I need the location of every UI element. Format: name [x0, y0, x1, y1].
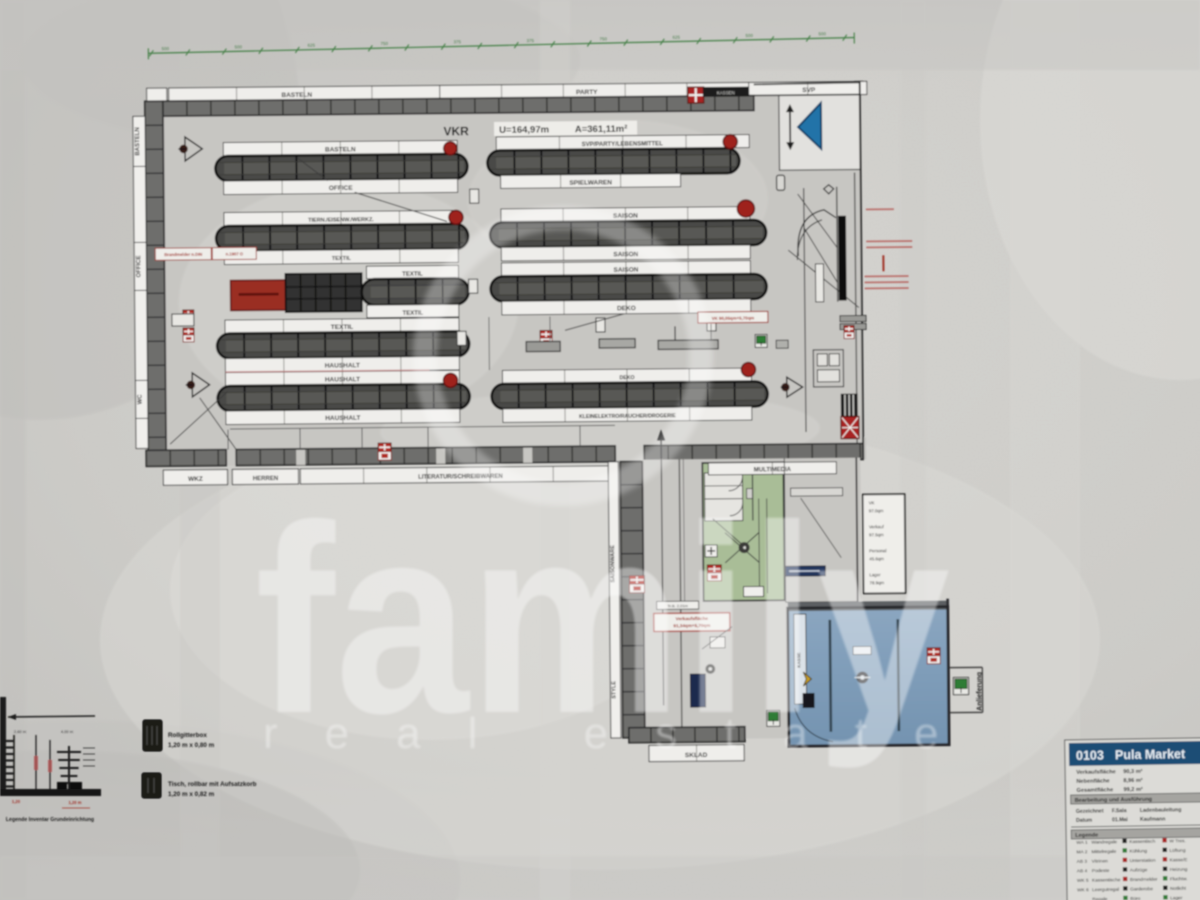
- svg-text:Aufzüge: Aufzüge: [1130, 867, 1148, 873]
- svg-text:DEKO: DEKO: [617, 305, 636, 312]
- svg-text:Legende: Legende: [1075, 833, 1098, 839]
- svg-text:n.1907 O: n.1907 O: [226, 251, 244, 256]
- svg-text:1,20 m x 0,82 m: 1,20 m x 0,82 m: [168, 791, 215, 798]
- svg-text:Ladenbauleitung: Ladenbauleitung: [1140, 807, 1182, 814]
- svg-text:Nebenfläche: Nebenfläche: [1076, 778, 1109, 785]
- svg-text:Leergutregal: Leergutregal: [1092, 887, 1119, 893]
- svg-text:375: 375: [526, 38, 534, 43]
- svg-text:Garderobe: Garderobe: [1130, 886, 1153, 892]
- svg-text:90,3 m²: 90,3 m²: [1123, 768, 1143, 775]
- svg-text:WK 6: WK 6: [1077, 887, 1089, 893]
- svg-text:Anlieferung: Anlieferung: [976, 672, 983, 711]
- svg-text:Brandmelder n.DIN: Brandmelder n.DIN: [164, 252, 202, 257]
- svg-text:AB 3: AB 3: [1077, 859, 1088, 865]
- svg-text:Brandmelder: Brandmelder: [1130, 877, 1158, 883]
- svg-text:WK 5: WK 5: [1077, 878, 1089, 884]
- svg-text:500: 500: [745, 33, 753, 38]
- svg-text:Kühlung: Kühlung: [1129, 848, 1147, 854]
- svg-text:W Tres.: W Tres.: [1169, 838, 1186, 844]
- svg-text:Fluchtw.: Fluchtw.: [1170, 876, 1188, 882]
- svg-text:1,20 m: 1,20 m: [68, 800, 81, 805]
- svg-text:Regale: Regale: [1092, 896, 1108, 900]
- svg-text:4,00 m: 4,00 m: [61, 729, 74, 734]
- svg-text:Kasse/E: Kasse/E: [1170, 857, 1188, 863]
- svg-text:MA 2: MA 2: [1076, 849, 1087, 855]
- svg-text:Heizung: Heizung: [1170, 867, 1188, 873]
- svg-text:1,20 m x 0,80 m: 1,20 m x 0,80 m: [168, 742, 215, 749]
- svg-text:Gezeichnet: Gezeichnet: [1076, 809, 1104, 815]
- svg-text:TEXTIL: TEXTIL: [332, 256, 352, 262]
- svg-text:750: 750: [381, 41, 389, 46]
- svg-text:Lager: Lager: [1170, 895, 1183, 900]
- svg-text:KLEINELEKTRO/RAUCHER/DROGERIE: KLEINELEKTRO/RAUCHER/DROGERIE: [579, 413, 676, 420]
- svg-text:Podeste: Podeste: [1092, 868, 1110, 874]
- svg-text:BASTELN: BASTELN: [135, 127, 141, 155]
- svg-text:500: 500: [162, 46, 170, 51]
- svg-text:BASTELN: BASTELN: [281, 92, 312, 99]
- svg-text:Pula Market: Pula Market: [1115, 747, 1186, 762]
- svg-text:SVP/PARTY/LEBENSMITTEL: SVP/PARTY/LEBENSMITTEL: [582, 141, 664, 148]
- svg-text:1,20: 1,20: [12, 799, 21, 804]
- svg-text:BASTELN: BASTELN: [325, 146, 356, 153]
- svg-text:Wandregale: Wandregale: [1091, 839, 1117, 845]
- svg-text:Gesamtfläche: Gesamtfläche: [1076, 787, 1113, 794]
- svg-text:Verkaufsfläche: Verkaufsfläche: [1076, 769, 1116, 776]
- svg-text:Kassentisch: Kassentisch: [1129, 839, 1155, 845]
- svg-text:500: 500: [818, 31, 826, 36]
- svg-text:OFFICE: OFFICE: [329, 185, 354, 192]
- svg-text:HAUSHALT: HAUSHALT: [325, 415, 360, 422]
- svg-text:OFFICE: OFFICE: [136, 255, 142, 277]
- svg-text:PARTY: PARTY: [576, 89, 598, 96]
- svg-text:01.Mai: 01.Mai: [1112, 817, 1129, 823]
- svg-text:Datum: Datum: [1076, 818, 1093, 824]
- svg-text:500: 500: [235, 44, 243, 49]
- svg-text:Notlicht: Notlicht: [1170, 886, 1187, 892]
- svg-text:Kassentische: Kassentische: [1092, 877, 1121, 883]
- svg-text:Kaufmann: Kaufmann: [1140, 817, 1165, 823]
- svg-text:Tisch, rollbar mit Aufsatzkorb: Tisch, rollbar mit Aufsatzkorb: [168, 781, 257, 788]
- svg-text:real estate: real estate: [263, 709, 985, 758]
- svg-text:KASSEN: KASSEN: [717, 90, 735, 95]
- svg-text:Lüftung: Lüftung: [1169, 848, 1185, 854]
- svg-text:625: 625: [308, 43, 316, 48]
- svg-text:WA 1: WA 1: [1076, 840, 1088, 846]
- svg-text:Mittelregale: Mittelregale: [1091, 849, 1116, 855]
- svg-text:2,60 m: 2,60 m: [14, 729, 27, 734]
- svg-text:Legende Inventar Grundeinricht: Legende Inventar Grundeinrichtung: [6, 817, 94, 823]
- svg-text:625: 625: [672, 35, 680, 40]
- svg-text:WKZ: WKZ: [188, 476, 203, 483]
- svg-text:WC: WC: [138, 394, 144, 405]
- svg-text:8,96 m²: 8,96 m²: [1123, 777, 1143, 784]
- svg-text:Unterstation: Unterstation: [1130, 858, 1156, 864]
- svg-text:SPIELWAREN: SPIELWAREN: [569, 179, 612, 186]
- svg-text:HAUSHALT: HAUSHALT: [325, 362, 360, 369]
- svg-text:F.Sala: F.Sala: [1112, 808, 1127, 814]
- svg-text:AB 4: AB 4: [1077, 868, 1088, 874]
- svg-text:TIERN./EISENW./WERKZ.: TIERN./EISENW./WERKZ.: [308, 217, 374, 224]
- svg-text:TEXTIL: TEXTIL: [331, 324, 353, 331]
- svg-text:TEXTIL: TEXTIL: [402, 272, 423, 278]
- svg-text:DEKO: DEKO: [619, 375, 634, 381]
- svg-text:SVP: SVP: [802, 87, 816, 94]
- svg-text:Büro: Büro: [1130, 896, 1141, 900]
- svg-text:Rollgitterbox: Rollgitterbox: [168, 732, 207, 739]
- svg-text:375: 375: [453, 40, 461, 45]
- svg-text:Vitrinen: Vitrinen: [1092, 858, 1109, 864]
- svg-text:VKR: VKR: [443, 124, 469, 138]
- svg-text:HAUSHALT: HAUSHALT: [325, 376, 360, 383]
- svg-text:0103: 0103: [1076, 748, 1104, 762]
- svg-text:U=164,97m: U=164,97m: [499, 124, 549, 135]
- svg-text:SAISON: SAISON: [613, 267, 638, 274]
- svg-text:Bearbeitung und Ausführung: Bearbeitung und Ausführung: [1075, 797, 1153, 804]
- svg-text:A=361,11m²: A=361,11m²: [575, 124, 628, 136]
- svg-text:750: 750: [599, 36, 607, 41]
- svg-text:VK 90,05qm+5,70qm: VK 90,05qm+5,70qm: [712, 316, 755, 321]
- svg-text:99,2 m²: 99,2 m²: [1123, 786, 1143, 793]
